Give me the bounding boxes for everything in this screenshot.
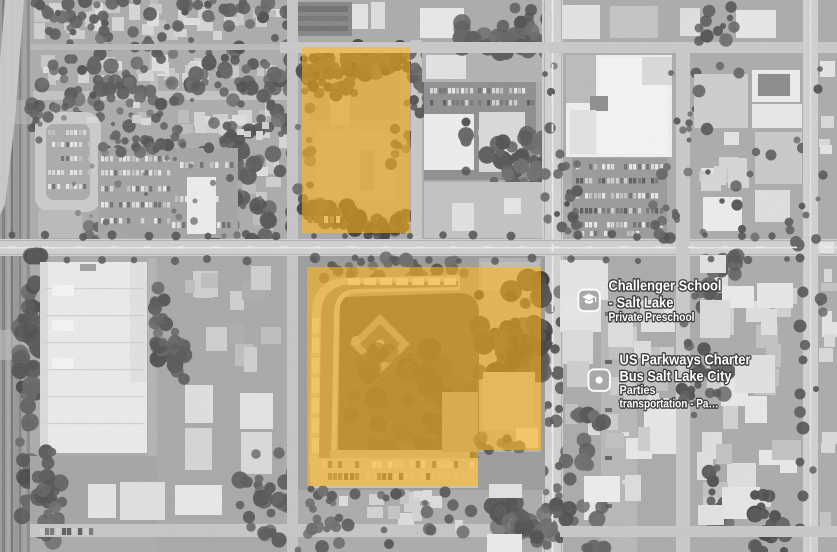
svg-text:- Salt Lake: - Salt Lake <box>609 295 674 311</box>
svg-text:Challenger School: Challenger School <box>609 279 722 295</box>
svg-text:US Parkways Charter: US Parkways Charter <box>620 352 751 368</box>
svg-text:Parties: Parties <box>620 383 656 397</box>
svg-text:Private Preschool: Private Preschool <box>609 310 695 324</box>
svg-text:transportation - Pa…: transportation - Pa… <box>620 396 719 410</box>
